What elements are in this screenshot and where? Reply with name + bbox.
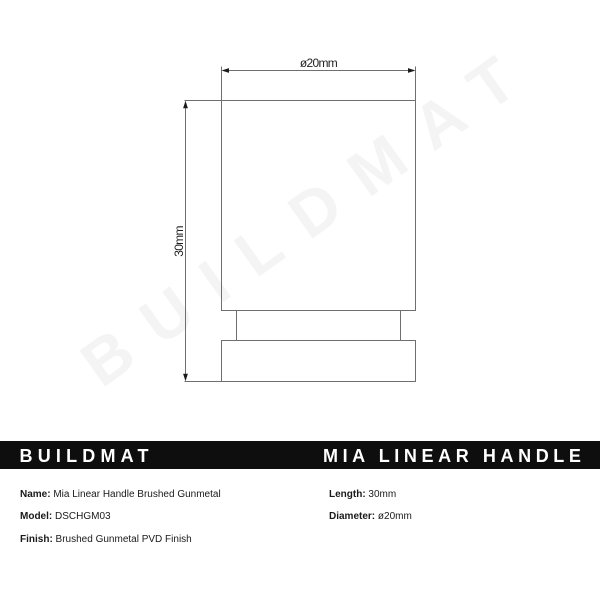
svg-text:30mm: 30mm <box>172 226 186 257</box>
svg-text:ø20mm: ø20mm <box>300 56 338 70</box>
